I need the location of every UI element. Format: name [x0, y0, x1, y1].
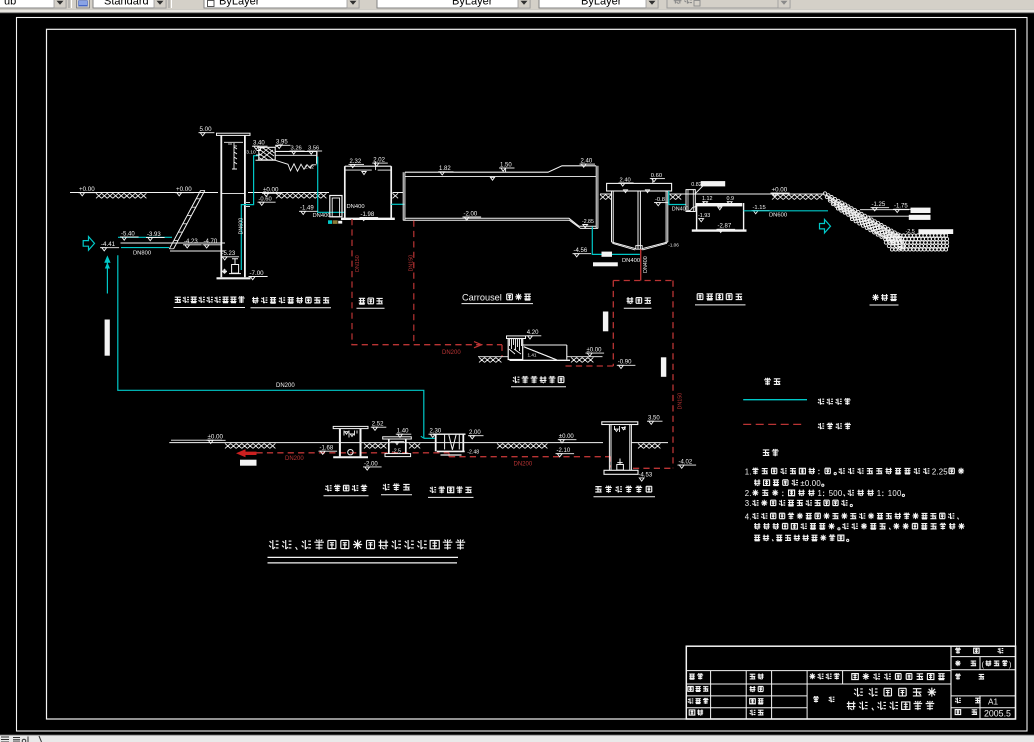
svg-text:ByLayer: ByLayer [219, 0, 260, 7]
svg-text:-4.70: -4.70 [204, 239, 218, 245]
svg-text:Carrousel: Carrousel [462, 293, 502, 303]
svg-text:.: . [749, 499, 751, 508]
svg-text:+0.00: +0.00 [772, 187, 788, 194]
svg-text:-0.60: -0.60 [259, 197, 272, 203]
svg-text:3.56: 3.56 [308, 145, 319, 151]
svg-text:-1.68: -1.68 [320, 446, 334, 452]
svg-text:-1.06: -1.06 [668, 242, 679, 247]
svg-text:-1.93: -1.93 [698, 213, 710, 219]
svg-text:3.10: 3.10 [246, 150, 256, 156]
svg-text:-2.10: -2.10 [557, 448, 571, 454]
svg-text:±0.00: ±0.00 [208, 434, 224, 441]
svg-text:±0.00: ±0.00 [559, 434, 575, 440]
svg-text:DN400: DN400 [313, 213, 331, 219]
svg-text:-5.40: -5.40 [121, 231, 135, 237]
svg-text:±0.00: ±0.00 [263, 187, 279, 194]
svg-text:-4.56: -4.56 [574, 248, 588, 254]
svg-text:A1: A1 [988, 698, 998, 707]
svg-text:1: 1 [877, 489, 881, 498]
svg-text:-4.41: -4.41 [101, 241, 116, 248]
svg-text:2005.5: 2005.5 [984, 709, 1011, 719]
svg-text:3.40: 3.40 [253, 141, 265, 147]
svg-text:Standard: Standard [104, 0, 149, 7]
svg-text:DN200: DN200 [276, 383, 295, 389]
svg-text:ByLayer: ByLayer [452, 0, 493, 7]
svg-text:+0.00: +0.00 [79, 186, 95, 193]
svg-text:-0.8: -0.8 [655, 197, 665, 203]
svg-text:0: 0 [897, 489, 902, 498]
svg-text:.: . [749, 467, 751, 476]
svg-text:1.82: 1.82 [439, 166, 451, 172]
svg-text:2.52: 2.52 [372, 422, 384, 428]
svg-text:DN150: DN150 [408, 255, 414, 272]
svg-text:ub: ub [4, 0, 16, 7]
svg-text:DN800: DN800 [133, 251, 151, 257]
svg-text:-2.85: -2.85 [582, 219, 594, 225]
svg-text:.: . [749, 512, 751, 521]
svg-text:-1.15: -1.15 [753, 205, 766, 211]
svg-text:5.00: 5.00 [200, 126, 213, 133]
svg-text:-2.00: -2.00 [364, 461, 378, 467]
svg-text:-0.90: -0.90 [618, 360, 632, 366]
svg-text:5: 5 [943, 467, 948, 476]
svg-text:2.40: 2.40 [620, 177, 631, 183]
svg-text:-4.53: -4.53 [639, 472, 653, 478]
svg-text:-1.49: -1.49 [300, 206, 314, 212]
svg-text:0: 0 [816, 479, 821, 488]
svg-text:3.50: 3.50 [648, 416, 660, 422]
svg-text:-2.48: -2.48 [467, 449, 479, 455]
svg-text:2.40: 2.40 [581, 159, 593, 165]
svg-text:1.40: 1.40 [397, 429, 409, 435]
svg-text:DN400: DN400 [622, 258, 640, 264]
svg-text:-2.87: -2.87 [718, 224, 732, 230]
svg-text:.: . [749, 489, 751, 498]
svg-text:DN400: DN400 [347, 204, 365, 210]
svg-text:1: 1 [818, 489, 822, 498]
svg-text:ByLayer: ByLayer [581, 0, 622, 7]
svg-text:1.41: 1.41 [528, 352, 537, 357]
svg-text:-2.5: -2.5 [906, 229, 915, 235]
svg-text:0: 0 [838, 489, 843, 498]
svg-text:-2.00: -2.00 [464, 211, 478, 217]
svg-text:DN600: DN600 [239, 218, 245, 235]
svg-text:2.02: 2.02 [373, 158, 385, 164]
svg-text:-4.02: -4.02 [679, 460, 693, 466]
svg-text:-7.00: -7.00 [250, 270, 265, 277]
svg-text:-1.25: -1.25 [872, 202, 886, 208]
svg-text:3.26: 3.26 [291, 145, 302, 151]
svg-text:-4.23: -4.23 [184, 239, 198, 245]
svg-text:-2.5: -2.5 [392, 449, 401, 455]
svg-text:DN150: DN150 [677, 393, 683, 410]
svg-text:DN150: DN150 [355, 255, 361, 272]
svg-text:DN200: DN200 [442, 350, 461, 356]
svg-text:): ) [1009, 660, 1011, 669]
svg-text:4.20: 4.20 [527, 330, 539, 336]
svg-text:1.12: 1.12 [702, 196, 713, 202]
svg-text:1.50: 1.50 [500, 162, 512, 168]
svg-text:DN200: DN200 [514, 462, 533, 468]
svg-text:2.00: 2.00 [469, 430, 481, 436]
svg-text:-5.23: -5.23 [222, 251, 236, 257]
svg-text:2.30: 2.30 [430, 429, 442, 435]
svg-text:2.42: 2.42 [305, 165, 315, 171]
svg-text:DN200: DN200 [285, 456, 304, 462]
svg-text:3.95: 3.95 [276, 140, 288, 146]
svg-text:DN600: DN600 [769, 213, 787, 219]
svg-text:2.32: 2.32 [350, 159, 362, 165]
svg-text:DN400: DN400 [643, 256, 649, 273]
svg-text:+0.00: +0.00 [176, 186, 192, 193]
svg-text:-1.98: -1.98 [361, 212, 375, 218]
svg-text:-3.93: -3.93 [147, 232, 161, 238]
svg-text:±0.00: ±0.00 [587, 348, 603, 354]
svg-text:0.82: 0.82 [691, 182, 702, 188]
svg-text:-1.75: -1.75 [894, 204, 908, 210]
svg-text:0.60: 0.60 [651, 173, 662, 179]
